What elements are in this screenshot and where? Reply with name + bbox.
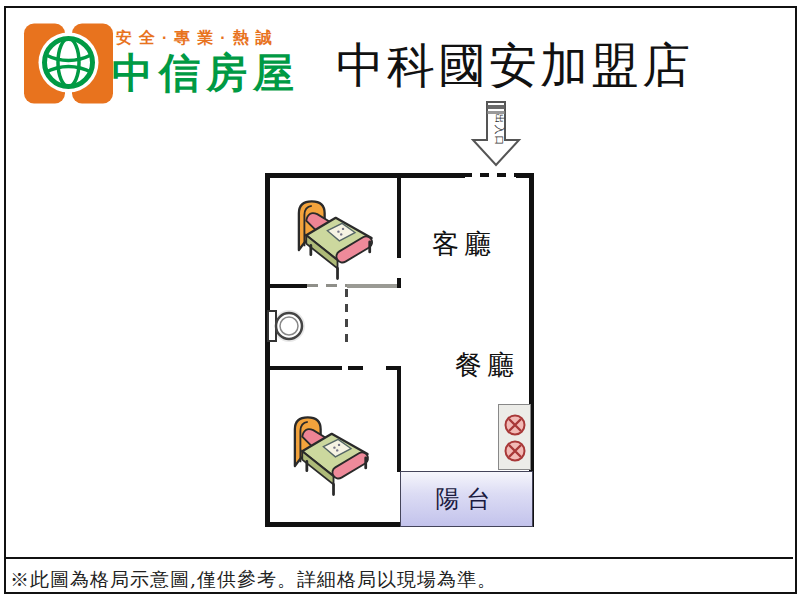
wall-top-entrance-dashed [463,173,518,177]
wall-left [265,173,270,527]
wall-bedroom2-top-left [265,366,342,370]
living-room-label: 客廳 [432,226,496,262]
chinatrust-realty-logo-icon [22,21,117,107]
entrance-arrow-icon: 出入口 [470,100,522,170]
wall-bedroom2-top-dash [348,366,363,370]
disclaimer-text: ※此圖為格局示意圖,僅供參考。詳細格局以現場為準。 [10,567,497,593]
bed-icon-bedroom-2 [282,406,374,504]
wall-bathroom-door-dashed [345,289,348,345]
toilet-icon [266,307,308,345]
wall-bedroom2-right [397,366,401,472]
bed-icon-bedroom-1 [286,190,378,288]
balcony-area: 陽台 [400,471,533,527]
store-title: 中科國安加盟店 [336,34,693,98]
wall-living-bedroom1 [397,173,401,258]
footer-bar: ※此圖為格局示意圖,僅供參考。詳細格局以現場為準。 [4,557,793,592]
flyer-page: 安全·專業·熱誠 中信房屋 中科國安加盟店 出入口 客廳 餐廳 陽台 [0,0,800,600]
entrance-label: 出入口 [494,114,505,147]
dining-room-label: 餐廳 [455,347,519,383]
stove-burners-icon [498,404,531,470]
wall-top [265,173,465,178]
balcony-label: 陽台 [436,483,498,515]
brand-name: 中信房屋 [112,46,300,101]
wall-door-jamb [397,278,401,288]
